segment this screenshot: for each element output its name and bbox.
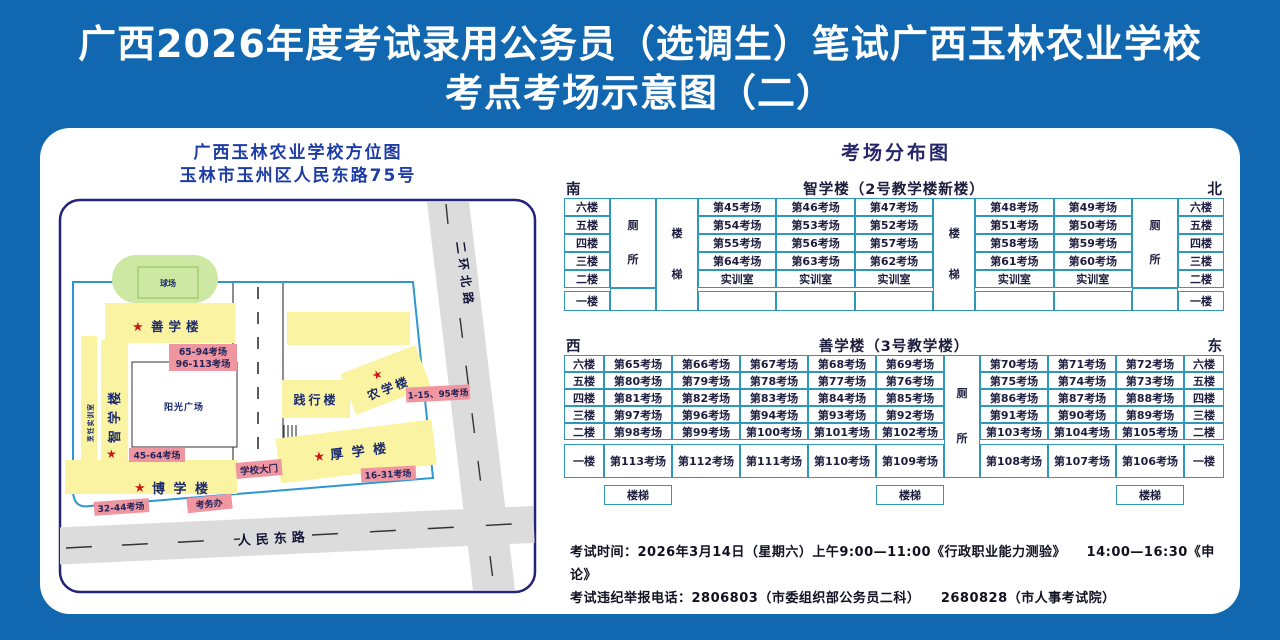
room-cell: 实训室	[776, 270, 854, 288]
yangguang-plaza-label: 阳光广场	[164, 401, 204, 413]
table2-compass-east: 东	[1208, 335, 1223, 356]
room-cell: 第91考场	[980, 406, 1048, 423]
room-cell: 第57考场	[855, 234, 933, 252]
room-cell: 第111考场	[740, 444, 808, 478]
star-houxuelou: ★	[313, 449, 326, 465]
floor-label: 六楼	[564, 355, 604, 372]
table1-title: 智学楼（2号教学楼新楼）	[564, 178, 1224, 199]
empty-cell	[776, 291, 854, 311]
stairs-cell: 楼梯	[604, 485, 672, 505]
sports-field-label: 球场	[160, 278, 176, 288]
room-cell: 第49考场	[1054, 198, 1132, 216]
room-cell: 第104考场	[1048, 423, 1116, 440]
star-boxuelou: ★	[134, 481, 146, 496]
room-cell: 第89考场	[1116, 406, 1184, 423]
room-cell: 第90考场	[1048, 406, 1116, 423]
stairs-cell: 楼梯	[1116, 485, 1184, 505]
floor-label: 五楼	[564, 216, 610, 234]
room-cell: 第97考场	[604, 406, 672, 423]
floor-label: 三楼	[564, 252, 610, 270]
toilet-cell: 厕所	[944, 355, 980, 478]
exam-time-note: 考试时间：2026年3月14日（星期六）上午9:00—11:00《行政职业能力测…	[570, 541, 1232, 587]
room-cell: 第53考场	[776, 216, 854, 234]
floor-label: 三楼	[1178, 252, 1224, 270]
room-cell: 第101考场	[808, 423, 876, 440]
floor-label: 一楼	[1184, 444, 1224, 478]
table2-grid: 六楼六楼五楼五楼四楼四楼三楼三楼二楼二楼一楼一楼第65考场第66考场第67考场第…	[564, 355, 1224, 505]
room-cell: 第47考场	[855, 198, 933, 216]
room-cell: 第48考场	[975, 198, 1053, 216]
room-cell: 第60考场	[1054, 252, 1132, 270]
room-cell: 第82考场	[672, 389, 740, 406]
room-cell: 第109考场	[876, 444, 944, 478]
floor-label: 四楼	[564, 389, 604, 406]
floor-label: 五楼	[564, 372, 604, 389]
room-cell: 第81考场	[604, 389, 672, 406]
empty-cell	[698, 291, 776, 311]
floor-label: 四楼	[1178, 234, 1224, 252]
room-cell: 第107考场	[1048, 444, 1116, 478]
floor-label: 二楼	[1184, 423, 1224, 440]
floor-label: 四楼	[1184, 389, 1224, 406]
floor-label: 一楼	[564, 291, 610, 311]
room-cell: 第88考场	[1116, 389, 1184, 406]
campus-map: 球场 阳光广场 ★ 善学楼 智学楼 烹饪实训室 ★ ★ 博 学 楼 ★ 厚 学 …	[50, 190, 542, 604]
floor-label: 六楼	[1184, 355, 1224, 372]
room-cell: 第51考场	[975, 216, 1053, 234]
room-cell: 第93考场	[808, 406, 876, 423]
floor-label: 一楼	[1178, 291, 1224, 311]
boxuelou-label: 博 学 楼	[152, 481, 210, 497]
room-cell: 第61考场	[975, 252, 1053, 270]
map-title-line1: 广西玉林农业学校方位图	[54, 142, 542, 165]
room-cell: 实训室	[698, 270, 776, 288]
floor-label: 四楼	[564, 234, 610, 252]
room-cell: 第50考场	[1054, 216, 1132, 234]
room-cell: 第66考场	[672, 355, 740, 372]
room-cell: 第71考场	[1048, 355, 1116, 372]
empty-cell	[855, 291, 933, 311]
room-cell: 第108考场	[980, 444, 1048, 478]
room-cell: 第113考场	[604, 444, 672, 478]
table2-title: 善学楼（3号教学楼）	[564, 335, 1224, 356]
room-cell: 第106考场	[1116, 444, 1184, 478]
room-cell: 第54考场	[698, 216, 776, 234]
floor-label: 一楼	[564, 444, 604, 478]
room-cell: 第100考场	[740, 423, 808, 440]
room-cell: 第75考场	[980, 372, 1048, 389]
stairs-cell: 楼梯	[876, 485, 944, 505]
toilet-cell: 厕所	[610, 198, 656, 288]
table1-compass-north: 北	[1208, 178, 1223, 199]
room-cell: 第86考场	[980, 389, 1048, 406]
empty-cell	[1132, 288, 1178, 311]
poster-title-line2: 考点考场示意图（二）	[0, 69, 1280, 118]
room-cell: 第74考场	[1048, 372, 1116, 389]
room-cell: 第45考场	[698, 198, 776, 216]
room-cell: 第87考场	[1048, 389, 1116, 406]
floor-label: 二楼	[564, 423, 604, 440]
map-title-line2: 玉林市玉州区人民东路75号	[54, 165, 542, 188]
empty-cell	[1054, 291, 1132, 311]
table2-header: 西 善学楼（3号教学楼） 东	[564, 335, 1224, 355]
stairs-cell: 楼梯	[656, 198, 698, 311]
exam-notes: 考试时间：2026年3月14日（星期六）上午9:00—11:00《行政职业能力测…	[560, 541, 1232, 610]
room-cell: 第59考场	[1054, 234, 1132, 252]
room-cell: 第63考场	[776, 252, 854, 270]
room-cell: 第46考场	[776, 198, 854, 216]
floor-label: 二楼	[1178, 270, 1224, 288]
table1-header: 南 智学楼（2号教学楼新楼） 北	[564, 178, 1224, 198]
floor-label: 五楼	[1178, 216, 1224, 234]
hou-rooms-label-group: 16-31考场	[361, 466, 417, 483]
room-cell: 第78考场	[740, 372, 808, 389]
room-cell: 第69考场	[876, 355, 944, 372]
room-cell: 第105考场	[1116, 423, 1184, 440]
floor-label: 五楼	[1184, 372, 1224, 389]
room-cell: 第79考场	[672, 372, 740, 389]
distribution-title: 考场分布图	[560, 138, 1232, 165]
room-cell: 第99考场	[672, 423, 740, 440]
stairs-cell: 楼梯	[933, 198, 975, 311]
floor-label: 六楼	[564, 198, 610, 216]
shan-rooms-line1: 65-94考场	[179, 346, 227, 358]
star-shanxuelou: ★	[132, 320, 144, 335]
poster-title-line1: 广西2026年度考试录用公务员（选调生）笔试广西玉林农业学校	[0, 20, 1280, 69]
building-unlabeled	[287, 312, 410, 345]
map-title: 广西玉林农业学校方位图 玉林市玉州区人民东路75号	[54, 142, 542, 188]
poster-title: 广西2026年度考试录用公务员（选调生）笔试广西玉林农业学校 考点考场示意图（二…	[0, 20, 1280, 118]
jianxinglou-label: 践行楼	[293, 392, 338, 407]
room-cell: 第98考场	[604, 423, 672, 440]
pengren-label: 烹饪实训室	[86, 403, 95, 442]
room-cell: 实训室	[1054, 270, 1132, 288]
room-cell: 第83考场	[740, 389, 808, 406]
star-zhixuelou: ★	[106, 447, 117, 461]
room-cell: 第110考场	[808, 444, 876, 478]
empty-cell	[975, 291, 1053, 311]
room-cell: 第103考场	[980, 423, 1048, 440]
room-cell: 实训室	[975, 270, 1053, 288]
zhi-rooms-label: 45-64考场	[134, 450, 181, 462]
room-cell: 第85考场	[876, 389, 944, 406]
room-cell: 第64考场	[698, 252, 776, 270]
floor-label: 六楼	[1178, 198, 1224, 216]
room-cell: 第96考场	[672, 406, 740, 423]
room-cell: 第92考场	[876, 406, 944, 423]
room-cell: 第68考场	[808, 355, 876, 372]
toilet-cell: 厕所	[1132, 198, 1178, 288]
distribution-section: 考场分布图 南 智学楼（2号教学楼新楼） 北 六楼六楼五楼五楼四楼四楼三楼三楼二…	[560, 138, 1232, 610]
room-cell: 第72考场	[1116, 355, 1184, 372]
table1-grid: 六楼六楼五楼五楼四楼四楼三楼三楼二楼二楼一楼一楼第45考场第46考场第47考场第…	[564, 198, 1224, 311]
empty-cell	[610, 288, 656, 311]
shanxuelou-label: 善学楼	[151, 319, 204, 334]
room-cell: 第55考场	[698, 234, 776, 252]
room-cell: 第77考场	[808, 372, 876, 389]
room-cell: 第73考场	[1116, 372, 1184, 389]
content-panel: 广西玉林农业学校方位图 玉林市玉州区人民东路75号	[40, 128, 1240, 614]
room-cell: 第52考场	[855, 216, 933, 234]
room-cell: 实训室	[855, 270, 933, 288]
report-phone-note: 考试违纪举报电话：2806803（市委组织部公务员二科） 2680828（市人事…	[570, 587, 1232, 610]
room-cell: 第80考场	[604, 372, 672, 389]
room-cell: 第62考场	[855, 252, 933, 270]
room-cell: 第102考场	[876, 423, 944, 440]
room-cell: 第112考场	[672, 444, 740, 478]
room-cell: 第84考场	[808, 389, 876, 406]
shan-rooms-line2: 96-113考场	[176, 358, 231, 370]
room-cell: 第76考场	[876, 372, 944, 389]
room-cell: 第94考场	[740, 406, 808, 423]
building-boxuelou	[65, 460, 237, 494]
floor-label: 二楼	[564, 270, 610, 288]
floor-label: 三楼	[1184, 406, 1224, 423]
room-cell: 第65考场	[604, 355, 672, 372]
room-cell: 第67考场	[740, 355, 808, 372]
room-cell: 第70考场	[980, 355, 1048, 372]
room-cell: 第58考场	[975, 234, 1053, 252]
zhixuelou-label: 智学楼	[107, 386, 123, 443]
room-cell: 第56考场	[776, 234, 854, 252]
floor-label: 三楼	[564, 406, 604, 423]
